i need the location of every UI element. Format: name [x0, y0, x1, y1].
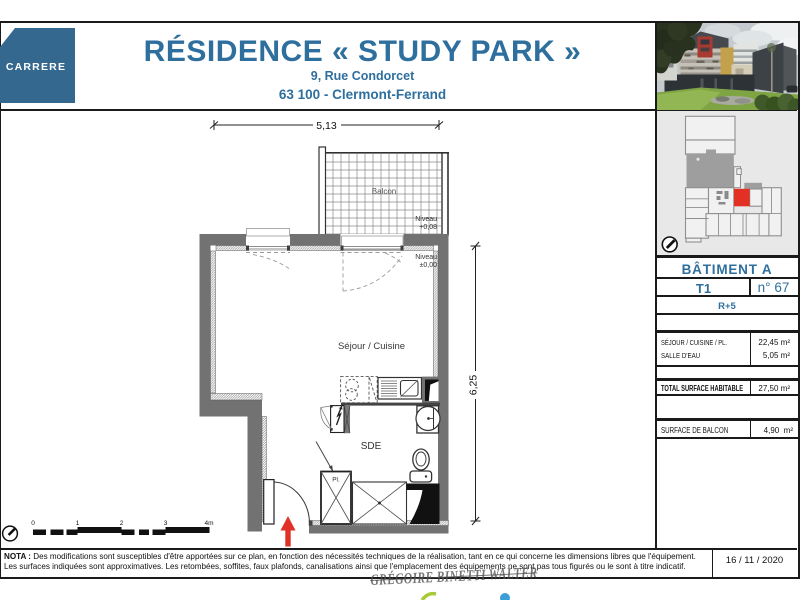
svg-text:SDE: SDE	[361, 441, 382, 452]
svg-text:2: 2	[120, 520, 124, 527]
svg-text:Balcon: Balcon	[372, 187, 396, 196]
svg-text:4m: 4m	[204, 520, 213, 527]
svg-text:±0,00: ±0,00	[420, 262, 438, 269]
svg-text:Niveau: Niveau	[415, 216, 437, 223]
svg-text:3: 3	[164, 520, 168, 527]
svg-text:5,13: 5,13	[316, 120, 337, 132]
svg-text:CARRERE: CARRERE	[6, 61, 66, 73]
svg-text:Séjour / Cuisine: Séjour / Cuisine	[338, 341, 405, 352]
svg-text:0: 0	[31, 520, 35, 527]
svg-text:+0,08: +0,08	[419, 224, 437, 231]
svg-text:6,25: 6,25	[468, 375, 480, 396]
svg-text:Niveau: Niveau	[415, 254, 437, 261]
svg-text:1: 1	[76, 520, 80, 527]
svg-text:Pl.: Pl.	[332, 477, 340, 484]
